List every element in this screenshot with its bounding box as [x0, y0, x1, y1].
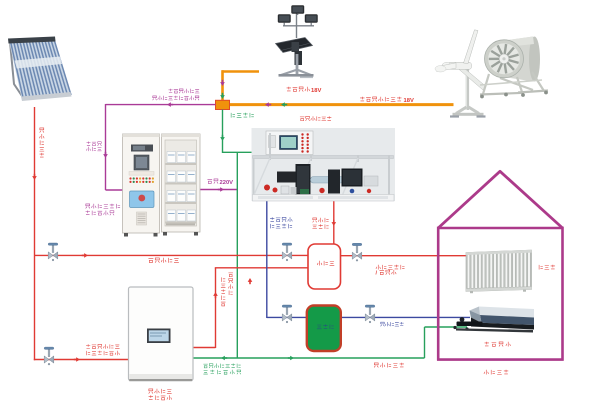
svg-text:18V: 18V [311, 88, 321, 94]
svg-text:18V: 18V [404, 98, 414, 104]
svg-text:220V: 220V [220, 180, 234, 186]
